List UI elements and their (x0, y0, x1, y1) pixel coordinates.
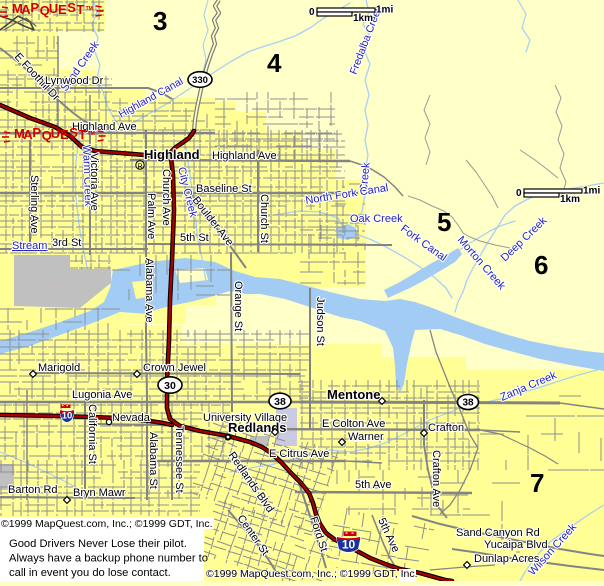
svg-text:Oak Creek: Oak Creek (350, 213, 403, 225)
svg-text:1mi: 1mi (376, 5, 393, 16)
svg-text:Bryn Mawr: Bryn Mawr (73, 487, 126, 499)
svg-text:T: T (78, 127, 86, 142)
svg-text:38: 38 (462, 398, 474, 409)
svg-text:3: 3 (153, 6, 167, 36)
svg-text:Marigold: Marigold (38, 362, 80, 374)
svg-text:Warner: Warner (348, 431, 384, 443)
svg-text:TM: TM (88, 131, 95, 137)
svg-text:Crafton Ave: Crafton Ave (430, 450, 442, 507)
svg-text:call in event you do lose cont: call in event you do lose contact. (9, 567, 171, 579)
svg-text:Nevada: Nevada (112, 412, 151, 424)
svg-text:Sand Canyon Rd: Sand Canyon Rd (456, 527, 540, 539)
svg-text:T: T (76, 2, 84, 17)
svg-text:©1999 MapQuest.com, Inc.; ©199: ©1999 MapQuest.com, Inc.; ©1999 GDT, Inc… (206, 568, 418, 580)
svg-text:Good Drivers Never Lose their: Good Drivers Never Lose their pilot. (9, 538, 187, 550)
svg-text:Stream: Stream (12, 240, 47, 252)
svg-text:4: 4 (267, 48, 282, 78)
svg-text:Highland Ave: Highland Ave (212, 150, 277, 162)
svg-text:Sterling Ave: Sterling Ave (28, 175, 40, 234)
svg-text:S: S (69, 125, 78, 140)
svg-text:Always have a backup phone num: Always have a backup phone number to (9, 553, 208, 565)
svg-text:Lugonia Ave: Lugonia Ave (72, 389, 132, 401)
svg-text:TM: TM (86, 6, 93, 12)
svg-text:Highland: Highland (144, 147, 200, 162)
svg-text:10: 10 (342, 538, 356, 552)
svg-text:Church St: Church St (258, 194, 270, 243)
svg-text:U: U (51, 126, 60, 141)
svg-text:E: E (58, 2, 67, 17)
svg-text:Tennessee St: Tennessee St (173, 426, 185, 493)
svg-text:Judson St: Judson St (314, 297, 326, 346)
svg-text:California St: California St (86, 404, 98, 464)
svg-text:R: R (137, 164, 142, 171)
svg-text:P: P (30, 0, 39, 15)
svg-text:Palm Ave: Palm Ave (145, 193, 157, 239)
svg-text:5th St: 5th St (180, 232, 209, 244)
svg-text:38: 38 (274, 396, 286, 408)
svg-text:Yucaipa Blvd: Yucaipa Blvd (484, 539, 548, 551)
svg-text:Orange St: Orange St (232, 281, 244, 331)
svg-text:Crown Jewel: Crown Jewel (143, 362, 206, 374)
svg-text:©1999 MapQuest.com, Inc.; ©199: ©1999 MapQuest.com, Inc.; ©1999 GDT, Inc… (1, 518, 213, 530)
svg-text:Alabama St: Alabama St (147, 432, 159, 489)
svg-text:P: P (32, 125, 41, 140)
svg-text:1mi: 1mi (583, 186, 600, 197)
svg-text:30: 30 (164, 380, 176, 392)
svg-text:Lynwood Dr: Lynwood Dr (45, 75, 104, 87)
svg-text:E Citrus Ave: E Citrus Ave (269, 448, 329, 460)
svg-text:U: U (49, 1, 58, 16)
svg-text:330: 330 (192, 75, 208, 86)
svg-text:3rd St: 3rd St (52, 237, 81, 249)
svg-text:Dunlap Acres: Dunlap Acres (474, 553, 540, 565)
svg-text:1km: 1km (560, 194, 580, 205)
svg-text:Mentone: Mentone (327, 387, 380, 402)
svg-text:E: E (60, 127, 69, 142)
svg-text:Alabama Ave: Alabama Ave (143, 258, 155, 323)
svg-text:6: 6 (534, 250, 548, 280)
svg-text:5th Ave: 5th Ave (355, 479, 392, 491)
svg-text:0: 0 (309, 7, 315, 18)
svg-text:5: 5 (437, 207, 451, 237)
svg-text:Crafton: Crafton (428, 422, 464, 434)
svg-text:Victoria Ave: Victoria Ave (88, 153, 100, 211)
svg-text:E Colton Ave: E Colton Ave (322, 418, 385, 430)
svg-text:0: 0 (516, 188, 522, 199)
svg-text:S: S (67, 0, 76, 15)
svg-text:Church Ave: Church Ave (160, 169, 172, 226)
svg-text:1km: 1km (353, 13, 373, 24)
svg-text:Barton Rd: Barton Rd (8, 484, 58, 496)
svg-text:10: 10 (62, 411, 73, 422)
svg-text:7: 7 (530, 468, 544, 498)
svg-text:Baseline St: Baseline St (196, 183, 252, 195)
